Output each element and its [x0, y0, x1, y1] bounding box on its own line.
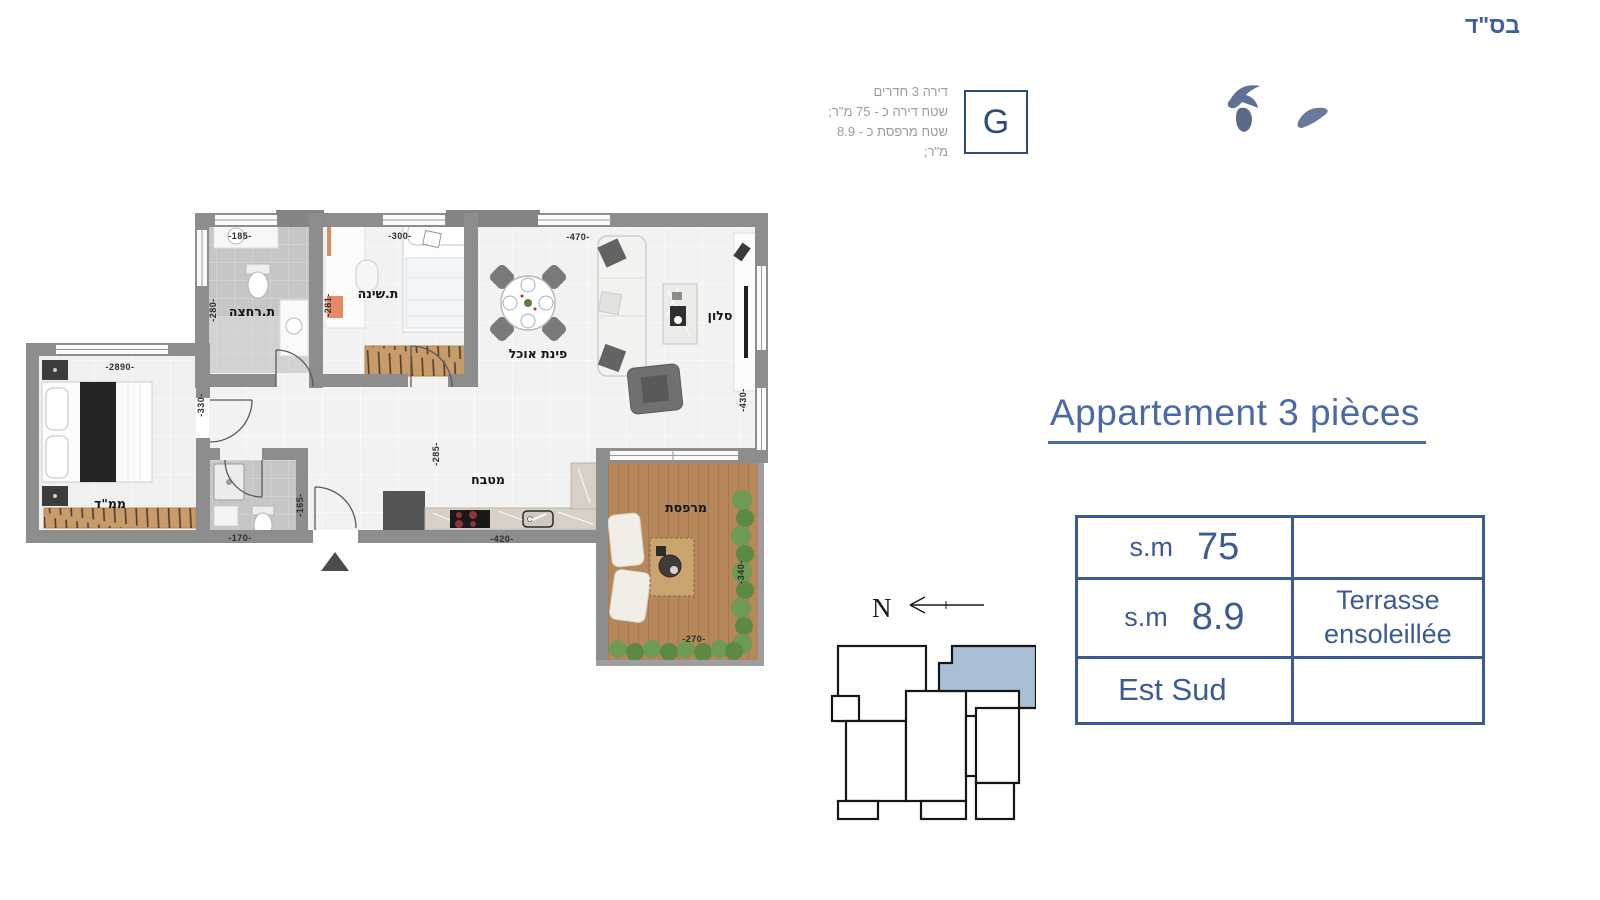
bsd-text: בס"ד: [1465, 12, 1520, 39]
table-row: s.m 75: [1077, 517, 1484, 579]
dimension-label: -2890-: [105, 362, 134, 372]
room-label-mamad: ממ"ד: [94, 496, 126, 511]
unit-line-3: שטח מרפסת כ - 8.9 מ"ר;: [826, 122, 948, 162]
unit-line-1: דירה 3 חדרים: [826, 82, 948, 102]
dimension-label: -170-: [228, 533, 252, 543]
dimension-label: -270-: [682, 634, 706, 644]
dimension-label: -300-: [388, 231, 412, 241]
dimension-label: -280-: [208, 298, 218, 322]
north-indicator: N: [862, 588, 994, 626]
bird-icon: [1236, 108, 1252, 132]
dimension-label: -420-: [490, 534, 514, 544]
unit-line-2: שטח דירה כ - 75 מ"ר;: [826, 102, 948, 122]
dimension-label: -340-: [736, 560, 746, 584]
terrace-area-value: 8.9: [1192, 596, 1245, 639]
unit-header: דירה 3 חדרים שטח דירה כ - 75 מ"ר; שטח מר…: [826, 82, 1028, 163]
row-note: [1294, 544, 1482, 552]
orientation-label: Est Sud: [1118, 672, 1227, 708]
room-label-kitchen: מטבח: [471, 472, 505, 487]
unit-letter-badge: G: [964, 90, 1028, 154]
building-key-plan: [826, 638, 1036, 828]
north-label: N: [872, 593, 892, 623]
page-title: Appartement 3 pièces: [1048, 392, 1426, 444]
birds-decoration: [1218, 78, 1338, 142]
armchair: [627, 363, 684, 414]
room-label-bathroom: ת.רחצה: [229, 304, 275, 319]
area-unit-label: s.m: [1129, 532, 1173, 563]
room-label-balcony: מרפסת: [665, 500, 707, 515]
floor-plan: ת.רחצה ת.שינה פינת אוכל סלון ממ"ד מטבח מ…: [18, 208, 770, 674]
dimension-label: -330-: [196, 393, 206, 417]
sofa: [597, 236, 646, 376]
row-note: [1294, 686, 1482, 694]
terrace-note: Terrasse ensoleillée: [1294, 580, 1482, 656]
area-unit-label: s.m: [1124, 602, 1168, 633]
table-row: s.m 8.9 Terrasse ensoleillée: [1077, 579, 1484, 658]
room-label-living: סלון: [708, 308, 733, 323]
page: בס"ד דירה 3 חדרים שטח דירה כ - 75 מ"ר; ש…: [0, 0, 1600, 900]
apartment-area-value: 75: [1197, 526, 1239, 569]
north-arrow-icon: [910, 597, 984, 613]
room-label-dining: פינת אוכל: [509, 346, 568, 361]
dimension-label: -430-: [738, 388, 748, 412]
dimension-label: -470-: [566, 232, 590, 242]
table-row: Est Sud: [1077, 657, 1484, 723]
room-label-bedroom: ת.שינה: [358, 286, 399, 301]
bird-icon: [1298, 108, 1328, 128]
tv-console: [733, 233, 756, 391]
dimension-label: -165-: [295, 493, 305, 517]
entrance-marker: [321, 552, 349, 571]
spec-table: s.m 75 s.m 8.9 Terrasse ensoleillée Est …: [1075, 515, 1485, 725]
bird-icon: [1228, 85, 1260, 108]
coffee-table: [663, 284, 697, 344]
dimension-label: -285-: [431, 442, 441, 466]
dimension-label: -281-: [323, 293, 333, 317]
dimension-label: -185-: [228, 231, 252, 241]
unit-description: דירה 3 חדרים שטח דירה כ - 75 מ"ר; שטח מר…: [826, 82, 948, 163]
